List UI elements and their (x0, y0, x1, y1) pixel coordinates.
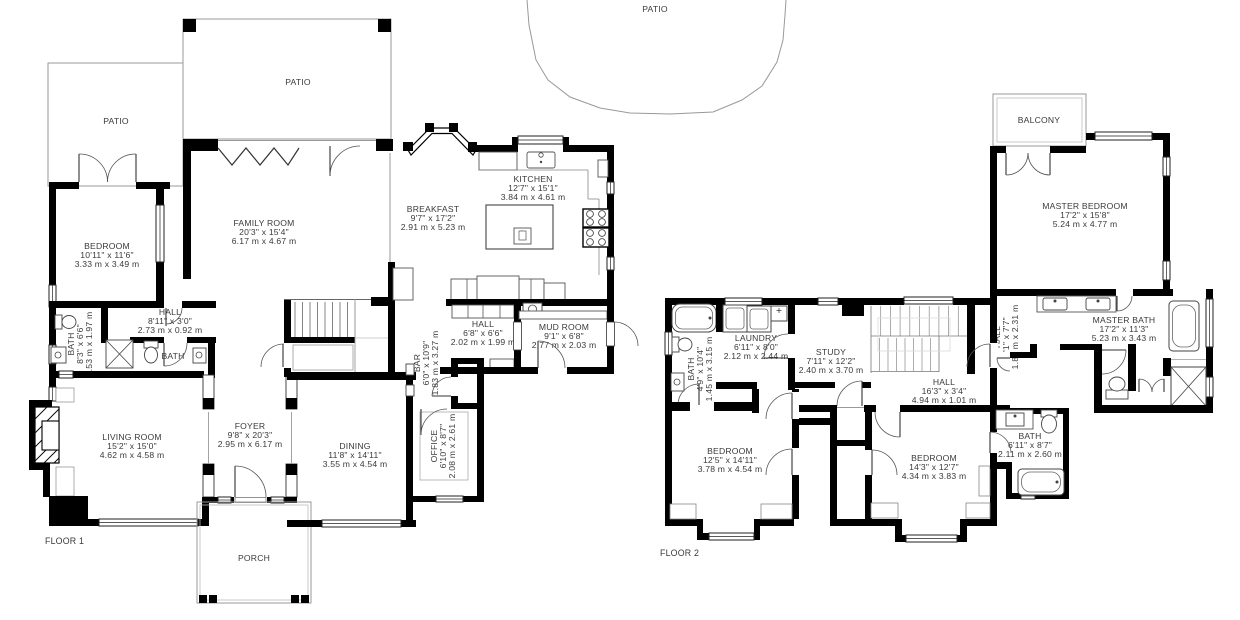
svg-text:2.73 m x 0.92 m: 2.73 m x 0.92 m (138, 325, 203, 335)
svg-text:4.62 m x 4.58 m: 4.62 m x 4.58 m (100, 450, 165, 460)
svg-text:PATIO: PATIO (285, 77, 311, 87)
svg-text:5.23 m x 3.43 m: 5.23 m x 3.43 m (1092, 333, 1157, 343)
svg-text:BATH: BATH (161, 351, 184, 361)
svg-text:2.02 m x 1.99 m: 2.02 m x 1.99 m (451, 337, 516, 347)
svg-text:4.34 m x 3.83 m: 4.34 m x 3.83 m (902, 471, 967, 481)
svg-text:3.33 m x 3.49 m: 3.33 m x 3.49 m (75, 259, 140, 269)
svg-text:2.95 m x 6.17 m: 2.95 m x 6.17 m (218, 439, 283, 449)
svg-text:2.53 m x 1.97 m: 2.53 m x 1.97 m (84, 312, 94, 377)
svg-text:BALCONY: BALCONY (1018, 115, 1061, 125)
svg-text:6.17 m x 4.67 m: 6.17 m x 4.67 m (232, 236, 297, 246)
svg-text:1.86 m x 2.31 m: 1.86 m x 2.31 m (1010, 305, 1020, 370)
svg-text:FLOOR 1: FLOOR 1 (45, 536, 84, 546)
svg-text:2.40 m x 3.70 m: 2.40 m x 3.70 m (799, 365, 864, 375)
svg-text:2.11 m x 2.60 m: 2.11 m x 2.60 m (998, 449, 1062, 459)
svg-text:2.08 m x 2.61 m: 2.08 m x 2.61 m (447, 414, 457, 479)
svg-text:5.24 m x 4.77 m: 5.24 m x 4.77 m (1053, 219, 1118, 229)
svg-text:PORCH: PORCH (238, 553, 270, 563)
svg-text:PATIO: PATIO (103, 116, 129, 126)
svg-text:FLOOR 2: FLOOR 2 (660, 548, 699, 558)
svg-text:3.84 m x 4.61 m: 3.84 m x 4.61 m (501, 192, 566, 202)
svg-text:1.45 m x 3.15 m: 1.45 m x 3.15 m (704, 337, 714, 402)
svg-text:PATIO: PATIO (642, 4, 668, 14)
svg-text:2.12 m x 2.44 m: 2.12 m x 2.44 m (724, 351, 789, 361)
svg-text:2.91 m x 5.23 m: 2.91 m x 5.23 m (401, 222, 466, 232)
svg-text:4.94 m x 1.01 m: 4.94 m x 1.01 m (912, 395, 977, 405)
svg-text:3.55 m x 4.54 m: 3.55 m x 4.54 m (323, 459, 388, 469)
svg-text:3.78 m x 4.54 m: 3.78 m x 4.54 m (698, 464, 763, 474)
